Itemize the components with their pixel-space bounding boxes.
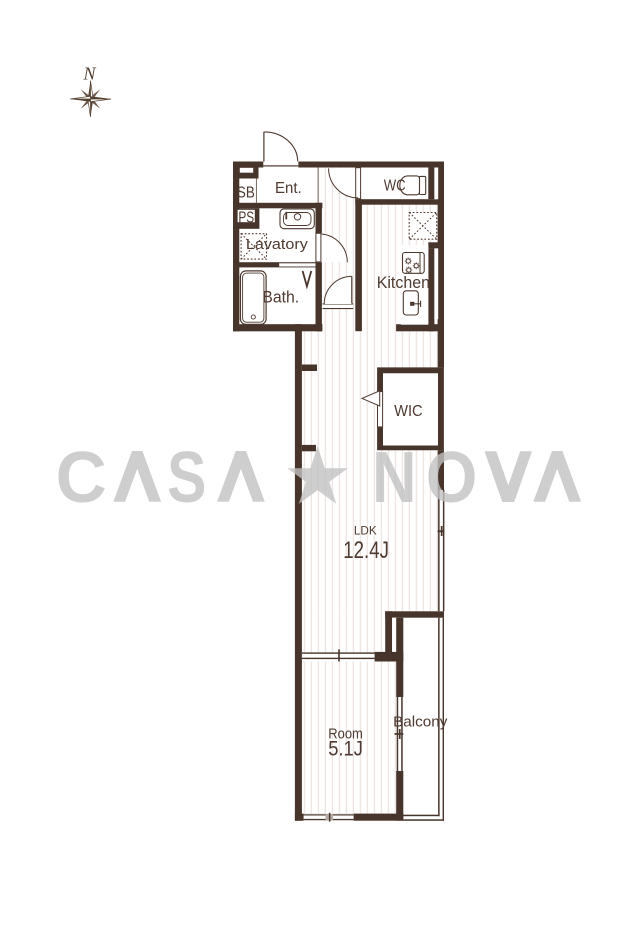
svg-text:12.4J: 12.4J xyxy=(343,537,389,564)
svg-text:Balcony: Balcony xyxy=(393,715,448,731)
svg-text:Kitchen: Kitchen xyxy=(377,274,430,292)
svg-text:SB: SB xyxy=(237,185,255,202)
svg-text:WIC: WIC xyxy=(394,403,423,420)
svg-text:5.1J: 5.1J xyxy=(328,737,363,760)
svg-text:N: N xyxy=(372,438,416,518)
svg-text:Ent.: Ent. xyxy=(275,180,302,197)
svg-text:O: O xyxy=(426,438,478,518)
svg-text:Lavatory: Lavatory xyxy=(246,237,309,253)
svg-text:Bath.: Bath. xyxy=(262,287,299,306)
svg-text:WC: WC xyxy=(384,177,406,194)
svg-text:S: S xyxy=(167,438,206,518)
svg-text:PS: PS xyxy=(238,209,254,226)
svg-text:N: N xyxy=(82,64,96,84)
svg-text:LDK: LDK xyxy=(354,526,377,538)
svg-text:C: C xyxy=(56,438,107,518)
